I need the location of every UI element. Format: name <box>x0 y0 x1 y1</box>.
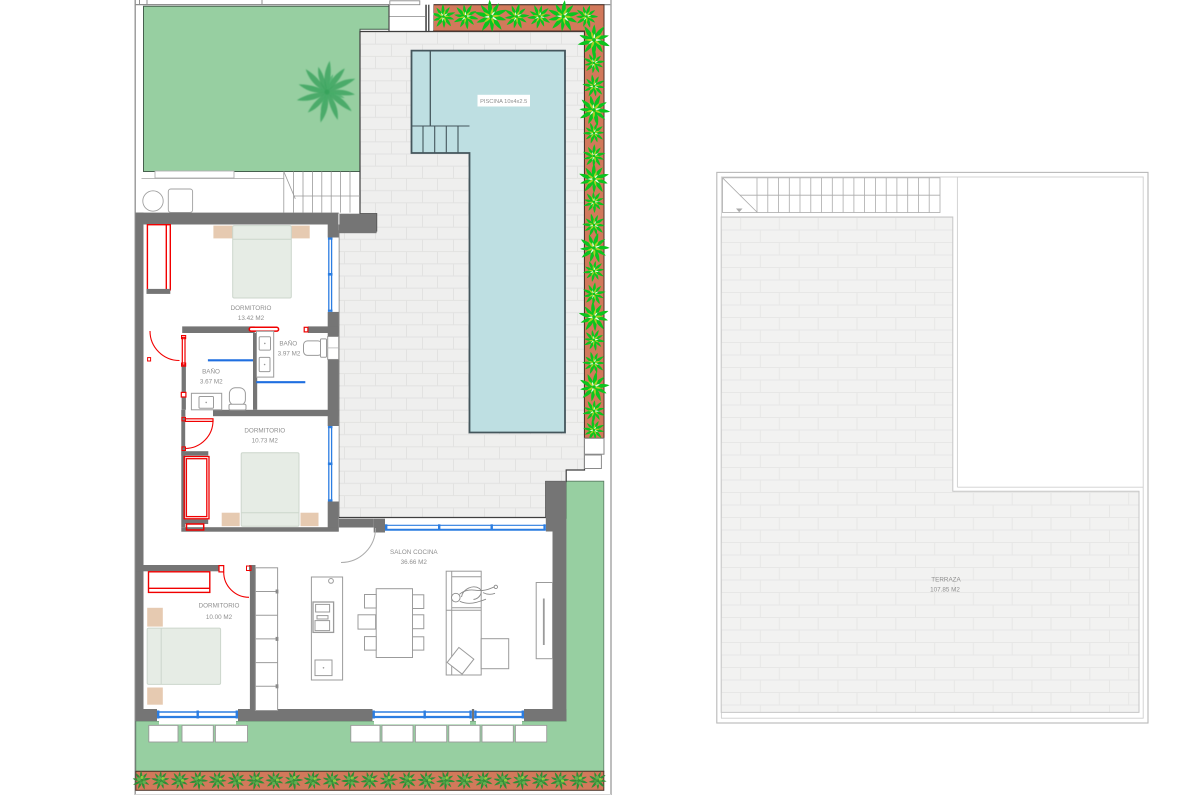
svg-text:BAÑO: BAÑO <box>202 367 220 376</box>
svg-text:TERRAZA: TERRAZA <box>931 577 961 584</box>
svg-text:36.66 M2: 36.66 M2 <box>401 559 428 566</box>
svg-text:PISCINA 10x4x2.5: PISCINA 10x4x2.5 <box>480 99 527 105</box>
svg-text:3.67 M2: 3.67 M2 <box>200 378 223 385</box>
svg-text:DORMITORIO: DORMITORIO <box>231 305 272 312</box>
svg-text:10.00 M2: 10.00 M2 <box>206 614 233 621</box>
svg-text:DORMITORIO: DORMITORIO <box>244 428 285 435</box>
svg-text:SALON COCINA: SALON COCINA <box>390 549 438 556</box>
svg-text:DORMITORIO: DORMITORIO <box>199 603 240 610</box>
svg-text:3.97 M2: 3.97 M2 <box>278 350 301 357</box>
svg-text:BAÑO: BAÑO <box>279 339 297 348</box>
svg-text:10.73 M2: 10.73 M2 <box>252 438 279 445</box>
svg-text:13.42 M2: 13.42 M2 <box>238 315 265 322</box>
svg-text:107.85 M2: 107.85 M2 <box>930 587 960 594</box>
